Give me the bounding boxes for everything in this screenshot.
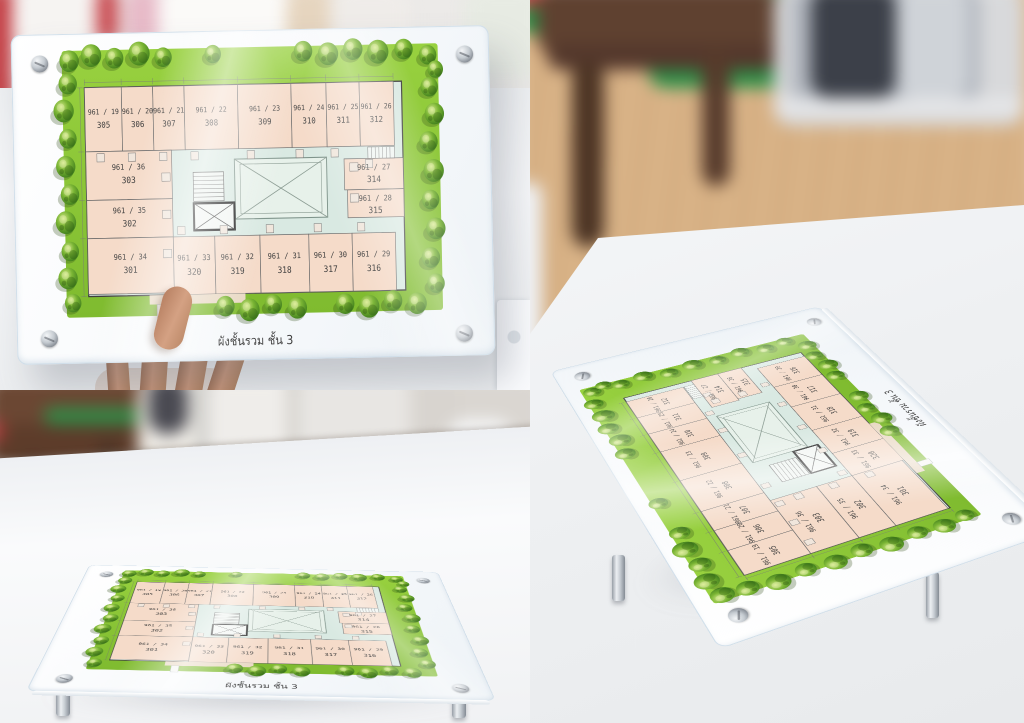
green-sign <box>44 408 139 424</box>
standoff-screw <box>456 324 473 341</box>
standoff-screw <box>456 45 473 62</box>
acrylic-sheet-with-hole <box>497 300 530 390</box>
floor-plan-sign <box>26 565 496 701</box>
floor-plan-sign <box>11 25 496 365</box>
bench-leg <box>702 46 730 186</box>
standoff-screw <box>41 330 58 347</box>
standoff-screw <box>31 55 48 72</box>
standoff-screw <box>99 571 114 577</box>
photo-sign-on-table-angled <box>530 0 1024 723</box>
standoff-leg <box>612 555 625 601</box>
standoff-screw <box>804 317 824 327</box>
standoff-screw <box>416 578 431 584</box>
photo-sign-on-table-front <box>0 390 530 723</box>
person-silhouette <box>148 390 188 434</box>
person-silhouette <box>811 0 896 98</box>
photo-collage <box>0 0 1024 723</box>
floor-plan-print <box>56 41 450 359</box>
glass-highlight <box>898 0 968 98</box>
bench-leg <box>572 62 604 247</box>
door-threshold <box>774 98 1024 114</box>
standoff-leg <box>926 572 939 618</box>
standoff-screw <box>54 674 74 683</box>
standoff-screw <box>725 606 752 625</box>
standoff-screw <box>572 371 592 382</box>
standoff-screw <box>998 511 1024 527</box>
photo-hand-holding-sign <box>0 0 530 390</box>
floor-plan-print <box>72 570 451 698</box>
standoff-screw <box>451 684 471 693</box>
